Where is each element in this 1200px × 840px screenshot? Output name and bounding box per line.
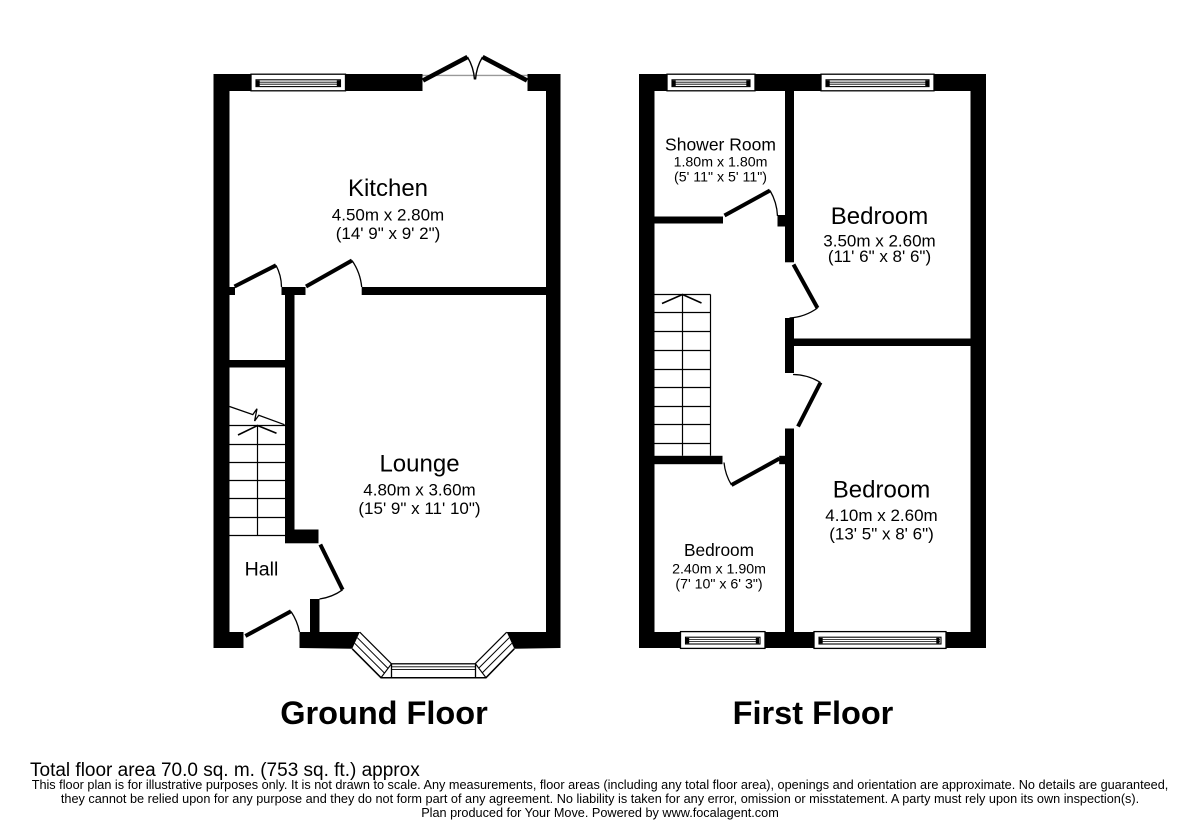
svg-text:Lounge: Lounge [379, 451, 459, 478]
svg-text:2.40m x 1.90m: 2.40m x 1.90m [672, 562, 766, 578]
svg-text:This floor plan is for illustr: This floor plan is for illustrative purp… [32, 778, 1169, 792]
svg-text:Hall: Hall [245, 559, 279, 581]
svg-text:Plan produced for Your Move. P: Plan produced for Your Move. Powered by … [421, 806, 779, 820]
svg-text:4.50m x 2.80m: 4.50m x 2.80m [332, 206, 444, 225]
svg-text:Ground Floor: Ground Floor [280, 695, 488, 731]
svg-text:First Floor: First Floor [733, 695, 894, 731]
svg-text:(14' 9" x 9' 2"): (14' 9" x 9' 2") [336, 224, 441, 243]
svg-text:(13' 5" x 8' 6"): (13' 5" x 8' 6") [829, 525, 934, 544]
svg-text:Shower Room: Shower Room [665, 135, 776, 155]
svg-text:4.80m x 3.60m: 4.80m x 3.60m [363, 481, 475, 500]
svg-text:Bedroom: Bedroom [684, 540, 754, 560]
svg-text:(11' 6" x 8' 6"): (11' 6" x 8' 6") [828, 247, 931, 266]
svg-text:Bedroom: Bedroom [833, 477, 930, 504]
svg-text:(15' 9" x 11' 10"): (15' 9" x 11' 10") [358, 499, 480, 518]
svg-text:(5' 11" x 5' 11"): (5' 11" x 5' 11") [674, 169, 767, 185]
svg-text:Bedroom: Bedroom [831, 203, 928, 230]
svg-text:4.10m x 2.60m: 4.10m x 2.60m [825, 506, 937, 525]
svg-text:Kitchen: Kitchen [348, 175, 428, 202]
svg-text:they cannot be relied upon for: they cannot be relied upon for any purpo… [61, 792, 1139, 806]
svg-text:(7' 10" x 6' 3"): (7' 10" x 6' 3") [675, 577, 762, 593]
svg-text:1.80m x 1.80m: 1.80m x 1.80m [674, 155, 768, 171]
